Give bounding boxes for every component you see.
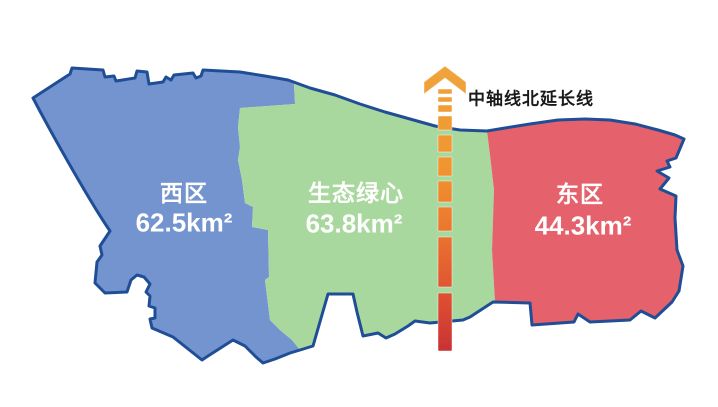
green-heart-area: 63.8km²: [306, 209, 403, 240]
west-district-name: 西区: [160, 174, 208, 208]
district-map-infographic: 中轴线北延长线 西区 62.5km² 生态绿心 63.8km² 东区 44.3k…: [0, 0, 718, 407]
axis-dash: [438, 157, 452, 176]
axis-dash: [438, 89, 452, 94]
axis-dash: [438, 237, 452, 287]
axis-dash: [438, 135, 452, 152]
axis-dash: [438, 293, 452, 351]
axis-label: 中轴线北延长线: [468, 85, 594, 110]
west-district-area: 62.5km²: [136, 208, 233, 239]
axis-dash: [438, 105, 452, 112]
green-heart-name: 生态绿心: [308, 174, 404, 208]
axis-dash: [438, 207, 452, 231]
axis-dash: [438, 181, 452, 202]
east-district-area: 44.3km²: [535, 211, 632, 242]
axis-dash: [438, 97, 452, 102]
east-district-name: 东区: [556, 175, 604, 209]
axis-dash: [438, 116, 452, 130]
